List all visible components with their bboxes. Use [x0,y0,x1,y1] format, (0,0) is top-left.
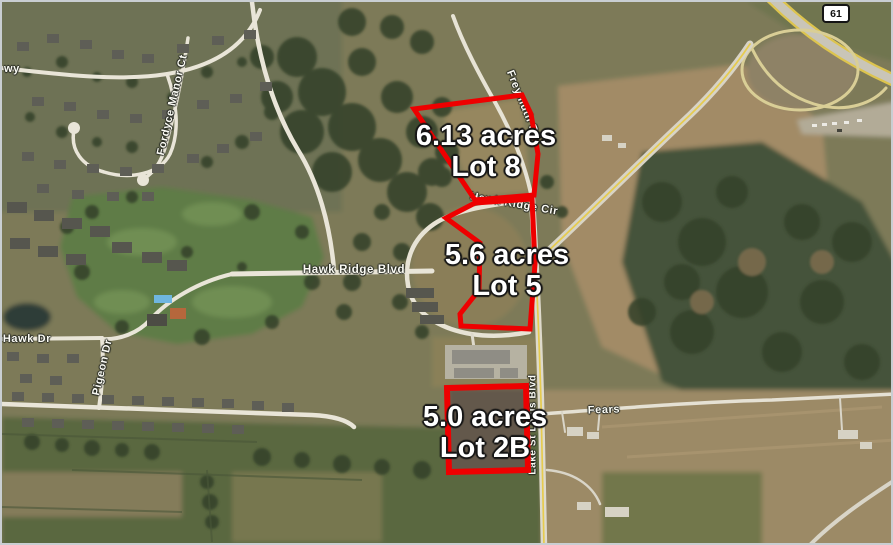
lot-8-label: 6.13 acres Lot 8 [398,121,574,183]
road-label-hawk-ridge-blvd: Hawk Ridge Blvd [289,264,419,277]
lot-5-acres: 5.6 acres [419,240,595,271]
lot-2b-acres: 5.0 acres [397,402,573,433]
lot-2b-name: Lot 2B [397,433,573,464]
tennis-court [170,308,186,319]
lot-8-acres: 6.13 acres [398,121,574,152]
lot-5-label: 5.6 acres Lot 5 [419,240,595,302]
road-label-parkway-partial: wy [4,63,34,76]
aerial-map: wy Fordyce Manor Ct Freymuth Rd Hawk Rid… [0,0,893,545]
highway-61-number: 61 [830,8,842,20]
highway-61-shield: 61 [822,4,850,23]
clubhouse [147,314,167,326]
swimming-pool [154,295,172,303]
lot-8-name: Lot 8 [398,152,574,183]
road-label-fears: Fears [579,403,629,418]
lot-5-name: Lot 5 [419,271,595,302]
road-label-hawk-dr: Hawk Dr [0,333,62,346]
lot-2b-label: 5.0 acres Lot 2B [397,402,573,464]
